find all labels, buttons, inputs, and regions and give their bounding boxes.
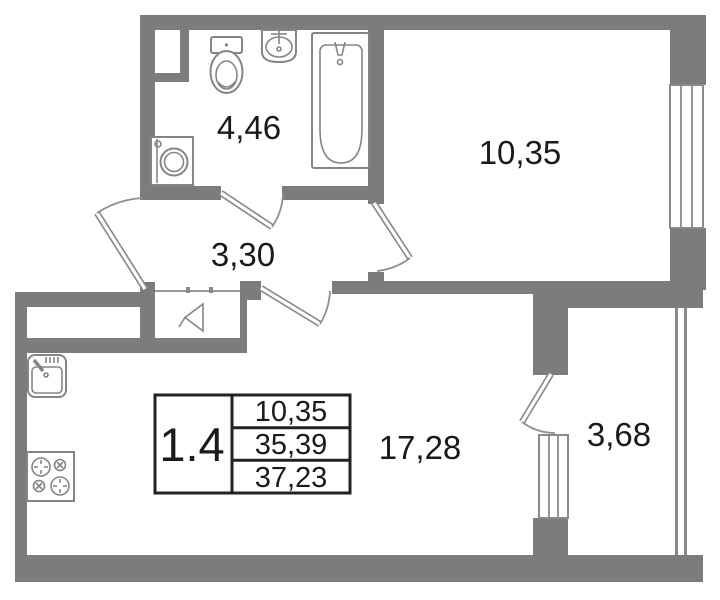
balcony-area-label: 3,68 bbox=[587, 416, 651, 453]
wall-living-balcony-bottom bbox=[533, 518, 568, 555]
entrance-door bbox=[97, 198, 145, 289]
wall-kitchen-top bbox=[17, 338, 247, 353]
wall-bedroom-right-bottom bbox=[670, 228, 706, 290]
living-area-value: 10,35 bbox=[255, 396, 328, 428]
wall-bottom-outer bbox=[15, 555, 703, 582]
bathroom-door bbox=[221, 193, 283, 227]
bedroom-window-icon bbox=[670, 85, 703, 228]
wall-bathroom-bedroom bbox=[368, 30, 384, 204]
wall-balcony-top bbox=[568, 290, 703, 308]
bedroom-area-label: 10,35 bbox=[479, 134, 562, 171]
living-kitchen-area-label: 17,28 bbox=[379, 429, 462, 466]
toilet-icon bbox=[211, 37, 243, 93]
apartment-area-value: 35,39 bbox=[255, 429, 328, 461]
bathtub-icon bbox=[312, 33, 369, 168]
bedroom-door bbox=[374, 203, 410, 271]
wall-living-balcony-top bbox=[533, 281, 568, 375]
wall-kitchen-niche-right bbox=[148, 307, 155, 338]
wall-top bbox=[140, 15, 706, 30]
balcony-door bbox=[522, 374, 555, 433]
total-area-value: 37,23 bbox=[255, 462, 328, 494]
living-room-door bbox=[261, 288, 330, 324]
floor-plan: 4,46 10,35 3,30 17,28 3,68 1.4 10,35 35,… bbox=[0, 0, 720, 600]
wall-shaft-bottom bbox=[140, 73, 189, 82]
ventilation-icon bbox=[155, 287, 240, 331]
wall-bathroom-bottom-right bbox=[282, 186, 368, 200]
unit-number-label: 1.4 bbox=[159, 418, 224, 471]
balcony-glazing-icon bbox=[675, 308, 687, 555]
stove-icon bbox=[27, 452, 74, 501]
wall-living-door-block bbox=[240, 281, 261, 300]
kitchen-sink-icon bbox=[28, 355, 66, 397]
hallway-area-label: 3,30 bbox=[211, 236, 275, 273]
wall-left-outer bbox=[15, 292, 27, 582]
bathroom-area-label: 4,46 bbox=[217, 109, 281, 146]
washing-machine-icon bbox=[151, 137, 193, 185]
wall-bathroom-bottom-left bbox=[140, 186, 221, 200]
wash-basin-icon bbox=[262, 30, 296, 62]
wall-kitchen-niche-top bbox=[17, 292, 155, 307]
wall-vent-box-right bbox=[240, 300, 247, 342]
wall-bedroom-right-top bbox=[670, 28, 706, 85]
title-block: 1.4 10,35 35,39 37,23 bbox=[155, 395, 350, 494]
balcony-door-window-icon bbox=[539, 435, 568, 518]
floor-plan-drawing: 4,46 10,35 3,30 17,28 3,68 1.4 10,35 35,… bbox=[0, 0, 720, 600]
